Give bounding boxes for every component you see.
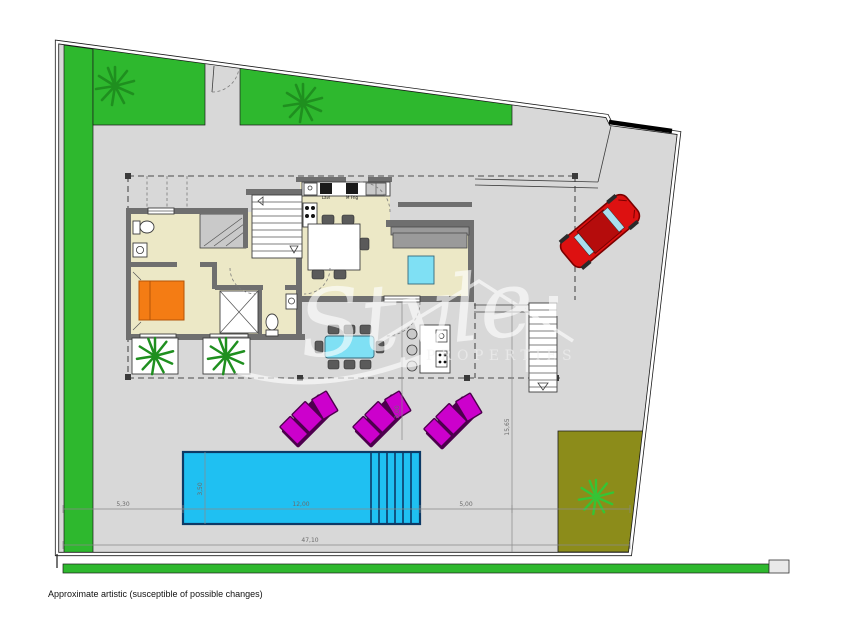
toilet-tank — [133, 221, 140, 234]
dim-pool-width: 3,50 — [197, 482, 204, 496]
toilet-tank — [266, 330, 278, 336]
swimming-pool: 3,50 — [183, 452, 420, 524]
hedge-end-cap — [769, 560, 789, 573]
sofa-seat — [393, 233, 467, 248]
watermark-caps-text: PROPERTIES — [426, 348, 577, 364]
dim-terrace-depth: 3,00 — [394, 405, 401, 419]
watermark-chimney-icon — [549, 296, 558, 316]
toilet-icon — [140, 221, 154, 233]
grass-left-strip — [64, 45, 93, 554]
kitchen-sink — [304, 183, 317, 195]
sink-icon — [133, 243, 147, 257]
bed — [139, 281, 184, 320]
staircase-main — [252, 195, 302, 258]
floor-plan-drawing: Lavl M Frig — [0, 0, 850, 620]
dim-total-width: 47,10 — [301, 537, 318, 544]
site-plan: Lavl M Frig — [0, 0, 850, 620]
dim-pool-length: 12,00 — [292, 501, 309, 508]
dishwasher — [320, 183, 332, 194]
caption: Approximate artistic (susceptible of pos… — [48, 589, 263, 599]
hedge-strip-bottom — [63, 564, 769, 573]
toilet-icon — [266, 314, 278, 330]
stove — [303, 203, 317, 227]
dim-right-side: 15,65 — [504, 418, 511, 435]
dim-left-gap: 5,30 — [116, 501, 130, 508]
closet — [200, 214, 246, 248]
kitchen-island — [308, 224, 360, 270]
fridge-label: M Frig — [346, 195, 358, 200]
oven — [346, 183, 358, 194]
dishwasher-label: Lavl — [322, 195, 330, 200]
dim-right-gap: 5,00 — [459, 501, 473, 508]
